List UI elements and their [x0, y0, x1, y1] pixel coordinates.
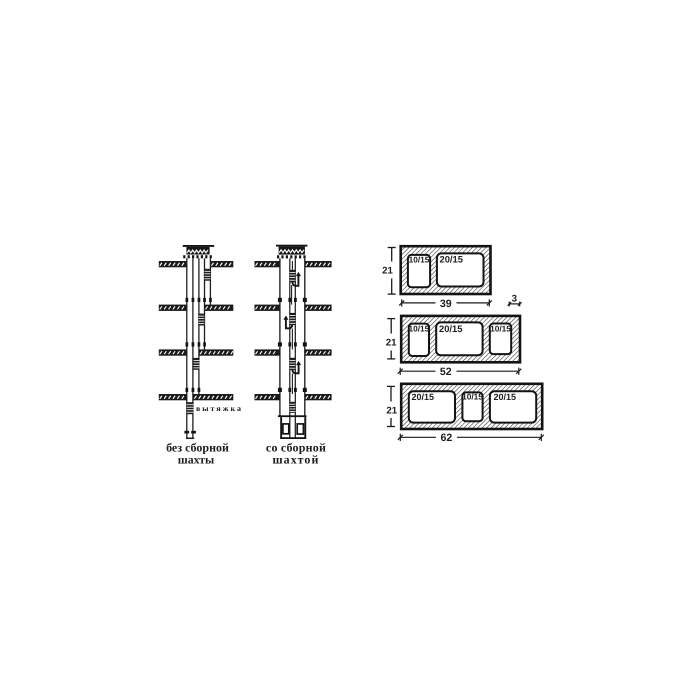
- svg-text:21: 21: [382, 265, 393, 276]
- svg-text:52: 52: [440, 366, 452, 378]
- svg-text:10/15: 10/15: [409, 255, 430, 265]
- svg-text:21: 21: [386, 406, 397, 417]
- svg-text:10/15: 10/15: [490, 323, 511, 333]
- svg-text:10/15: 10/15: [462, 392, 483, 402]
- svg-text:вытяжка: вытяжка: [196, 404, 243, 413]
- svg-text:21: 21: [386, 338, 397, 349]
- svg-text:39: 39: [440, 298, 452, 310]
- svg-text:20/15: 20/15: [439, 323, 462, 334]
- svg-text:20/15: 20/15: [494, 392, 517, 402]
- svg-text:10/15: 10/15: [409, 323, 430, 333]
- svg-text:20/15: 20/15: [412, 392, 435, 402]
- svg-text:шахты: шахты: [178, 453, 214, 467]
- svg-text:шахтой: шахтой: [272, 453, 319, 467]
- svg-text:62: 62: [441, 432, 453, 444]
- svg-text:20/15: 20/15: [440, 254, 463, 265]
- svg-text:3: 3: [512, 294, 518, 305]
